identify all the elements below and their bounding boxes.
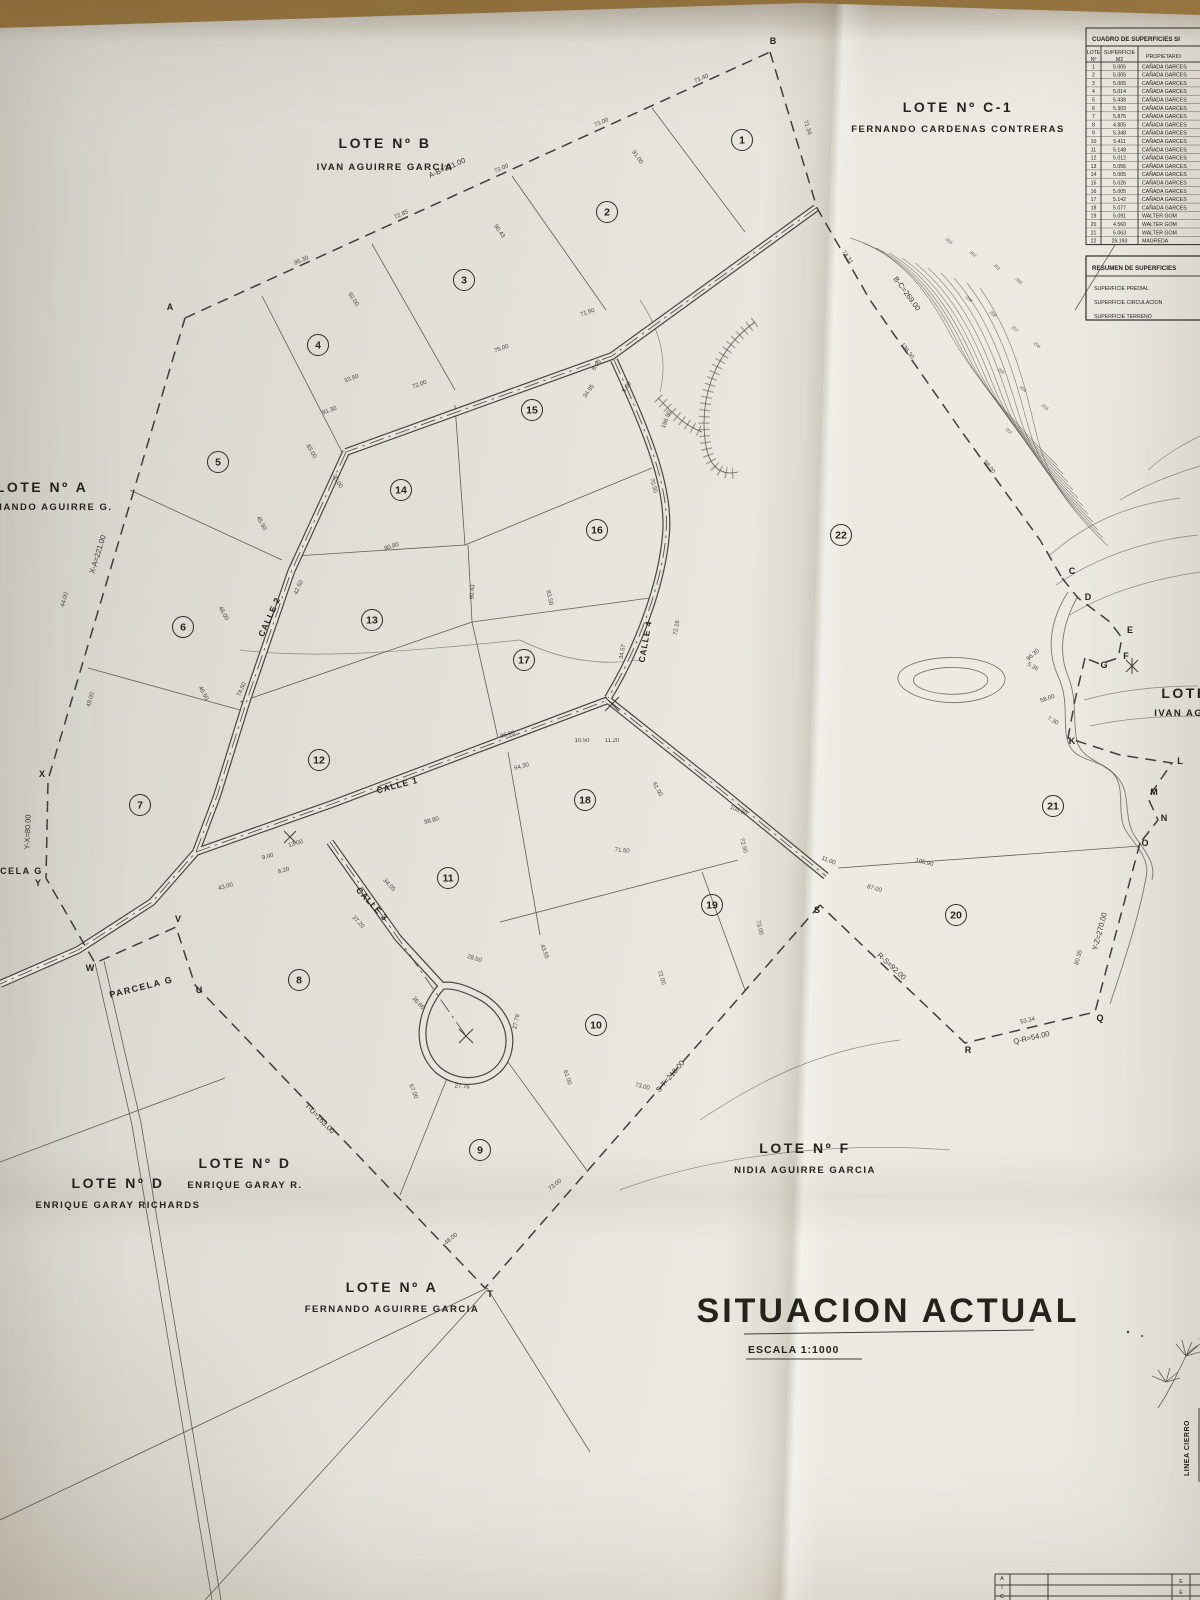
table-cell-superficie: 5.012 <box>1113 156 1126 162</box>
surface-summary: RESUMEN DE SUPERFICIESSUPERFICIE PREDIAL… <box>1086 256 1200 320</box>
parcel-division-lines <box>0 108 1140 1600</box>
edge-dimension-label: 11.00 <box>820 856 836 867</box>
edge-dimension-label: 98.00 <box>982 460 997 476</box>
table-cell-propietario: CAÑADA GARCES <box>1142 97 1187 104</box>
edge-dimension-label: 53.34 <box>1020 1016 1037 1025</box>
table-cell-superficie: 5.411 <box>1113 139 1126 145</box>
contour-elevation-label: 258 <box>988 310 997 319</box>
lot-owner-label: ENRIQUE GARAY R. <box>187 1180 302 1191</box>
contour-elevation-label: 257 <box>1010 325 1019 334</box>
edge-dimension-label: 105.90 <box>915 858 935 868</box>
contour-line <box>850 238 1058 466</box>
edge-dimension-label: 83.00 <box>305 443 318 460</box>
table-cell-lote: 8 <box>1092 122 1095 128</box>
table-cell-propietario: CAÑADA GARCES <box>1142 80 1187 87</box>
table-cell-lote: 10 <box>1091 139 1097 145</box>
resumen-title: RESUMEN DE SUPERFICIES <box>1092 265 1176 272</box>
table-cell-propietario: CAÑADA GARCES <box>1142 204 1187 211</box>
lot-name-label: LOTE Nº D <box>199 1155 292 1171</box>
boundary-point-letter: O <box>1141 838 1148 848</box>
table-cell-lote: 1 <box>1092 64 1095 70</box>
parcel-number: 5 <box>215 457 221 469</box>
edge-dimension-label: 5.36 <box>1026 662 1040 673</box>
boundary-point-letter: T <box>487 1289 493 1299</box>
edge-dimension-label: 74.31 <box>840 250 854 266</box>
table-cell-lote: 16 <box>1091 189 1097 195</box>
edge-dimension-label: 10.50 <box>574 738 590 744</box>
edge-dimension-label: 73.00 <box>634 1082 651 1092</box>
table-cell-superficie: 5.005 <box>1113 172 1126 178</box>
edge-dimension-label: 73.00 <box>548 1178 564 1193</box>
edge-dimension-label: 37.20 <box>350 915 365 931</box>
edge-dimension-label: 71.34 <box>802 120 813 137</box>
edge-dimension-label: 11.20 <box>605 738 620 744</box>
lot-name-label: LOTE Nº B <box>339 135 432 151</box>
lot-name-label: LOTE Nº C-1 <box>903 99 1013 115</box>
parcel-number: 18 <box>579 795 591 807</box>
boundary-point-letter: N <box>1161 813 1168 823</box>
boundary-point-letter: K <box>1069 736 1076 746</box>
boundary-dimension-label: Q-R=54.00 <box>1012 1029 1050 1046</box>
boundary-point-letter: F <box>1123 651 1129 661</box>
edge-dimension-label: 58.00 <box>1040 693 1057 704</box>
edge-dimension-label: 73.00 <box>594 117 611 129</box>
table-cell-superficie: 5.056 <box>1113 164 1126 170</box>
table-cell-lote: 19 <box>1091 214 1097 220</box>
edge-dimension-label: 40.50 <box>197 685 210 702</box>
edge-dimension-label: 91.30 <box>322 405 339 416</box>
boundary-point-letter: S <box>814 905 820 915</box>
edge-dimension-label: 75.00 <box>494 343 511 354</box>
boundary-point-letter: B <box>770 36 777 46</box>
contour-elevation-label: 263 <box>944 237 953 246</box>
edge-dimension-label: 96.30 <box>1026 648 1042 663</box>
table-cell-lote: 13 <box>1091 164 1097 170</box>
edge-dimension-label: 90.43 <box>469 584 476 600</box>
table-cell-propietario: CAÑADA GARCES <box>1142 180 1187 187</box>
edge-dimension-label: 196.50 <box>661 409 673 429</box>
edge-dimension-label: 28.50 <box>466 954 483 965</box>
table-cell-propietario: CAÑADA GARCES <box>1142 130 1187 137</box>
boundary-point-letter: L <box>1177 756 1183 766</box>
table-cell-superficie: 5.091 <box>1113 214 1126 220</box>
table-cell-superficie: 5.063 <box>1113 230 1126 236</box>
table-cell-superficie: 5.438 <box>1113 98 1126 104</box>
boundary-dimension-label: B-C=269.00 <box>892 275 923 313</box>
edge-dimension-label: 7.30 <box>1046 716 1060 727</box>
contour-line <box>915 263 1083 506</box>
parcel-number: 4 <box>315 340 321 352</box>
titleblock-letter: I <box>1001 1585 1002 1591</box>
parcel-number: 13 <box>366 615 378 627</box>
edge-dimension-label: 43.00 <box>218 882 235 892</box>
table-cell-propietario: CAÑADA GARCES <box>1142 171 1187 178</box>
table-cell-superficie: 26.193 <box>1112 239 1128 245</box>
boundary-dimension-label: T-U=163.00 <box>303 1101 337 1136</box>
edge-dimension-label: 80.35 <box>1074 949 1084 966</box>
parcel-number: 3 <box>461 275 467 287</box>
table-cell-propietario: CAÑADA GARCES <box>1142 188 1187 195</box>
lot-owner-label: ENRIQUE GARAY RICHARDS <box>36 1200 201 1211</box>
boundary-point-letter: A <box>167 302 174 312</box>
table-cell-superficie: 4.560 <box>1113 222 1126 228</box>
table-cell-propietario: CAÑADA GARCES <box>1142 121 1187 128</box>
edge-dimension-label: 33.50 <box>344 373 361 384</box>
table-cell-superficie: 5.005 <box>1113 189 1126 195</box>
contour-elevation-label: 261 <box>992 263 1001 272</box>
drawing-title: SITUACION ACTUAL <box>697 1292 1080 1330</box>
edge-dimension-label: 44.00 <box>60 591 70 608</box>
edge-dimension-label: 64.30 <box>514 762 531 772</box>
boundary-point-letter: V <box>175 914 181 924</box>
table-cell-propietario: CAÑADA GARCES <box>1142 88 1187 95</box>
table-cell-lote: 7 <box>1092 114 1095 120</box>
table-cell-superficie: 5.005 <box>1113 81 1126 87</box>
tree-symbol <box>1152 1326 1200 1408</box>
parcel-number: 1 <box>739 135 745 147</box>
edge-dimension-label: 72.50 <box>738 838 748 855</box>
edge-dimension-label: 49.00 <box>86 691 96 708</box>
contour-line <box>980 288 1108 546</box>
parcel-number: 22 <box>835 530 847 542</box>
boundary-point-letter: Q <box>1096 1013 1103 1023</box>
table-cell-superficie: 5.005 <box>1113 64 1126 70</box>
table-cell-propietario: CAÑADA GARCES <box>1142 105 1187 112</box>
street-name-label: CALLE 3 <box>354 885 390 923</box>
table-cell-superficie: 5.005 <box>1113 73 1126 79</box>
table-cell-superficie: 4.805 <box>1113 122 1126 128</box>
contour-line <box>967 283 1103 538</box>
table-cell-lote: 6 <box>1092 106 1095 112</box>
table-cell-propietario: CAÑADA GARCES <box>1142 163 1187 170</box>
contour-line <box>889 253 1073 490</box>
boundary-point-letter: G <box>1100 660 1107 670</box>
titleblock-letter: E <box>1179 1590 1183 1596</box>
edge-dimension-label: 61.00 <box>562 1070 573 1087</box>
surface-table: CUADRO DE SUPERFICIES SILOTENºSUPERFICIE… <box>1086 28 1200 245</box>
title-underline <box>744 1330 1034 1334</box>
contour-elevation-label: 252 <box>1004 427 1013 436</box>
edge-dimension-label: 27.79 <box>513 1013 522 1030</box>
parcel-number: 11 <box>442 873 453 885</box>
parcela-label: PARCELA G <box>0 866 43 876</box>
titleblock-letter: A <box>1000 1576 1004 1582</box>
boundary-dimension-label: Y-Z=270.00 <box>1090 911 1109 951</box>
parcel-number: 21 <box>1047 801 1059 813</box>
fence-line-legend-label: LINEA CIERRO <box>1184 1420 1191 1476</box>
table-cell-propietario: MAGREDA <box>1142 239 1169 245</box>
lot-owner-label: FERNANDO CARDENAS CONTRERAS <box>851 124 1065 135</box>
parcel-number: 16 <box>591 525 603 537</box>
titleblock-letter: C <box>1000 1594 1004 1600</box>
terrain-features <box>240 300 1200 1190</box>
resumen-item: SUPERFICIE CIRCULACION <box>1094 300 1163 306</box>
parcel-number: 14 <box>395 485 407 497</box>
table-cell-propietario: CAÑADA GARCES <box>1142 138 1187 145</box>
edge-dimension-label: 13.00 <box>288 839 305 849</box>
contour-line <box>941 273 1093 522</box>
edge-dimension-label: 67.00 <box>407 1084 418 1101</box>
lot-name-label: LOTE Nº D <box>72 1175 165 1191</box>
table-title: CUADRO DE SUPERFICIES SI <box>1092 36 1180 43</box>
edge-dimension-label: 34.05 <box>381 878 396 894</box>
edge-dimension-label: 98.80 <box>424 816 441 826</box>
photo-of-plan: CIAEE CUADRO DE SUPERFICIES SILOTENºSUPE… <box>0 0 1200 1600</box>
edge-dimension-label: 9.00 <box>261 852 274 861</box>
plan-drawing: CIAEE CUADRO DE SUPERFICIES SILOTENºSUPE… <box>0 0 1200 1600</box>
table-header: SUPERFICIE <box>1104 50 1136 56</box>
boundary-dimension-label: S-T=218.00 <box>654 1059 687 1095</box>
resumen-item: SUPERFICIE TERRENO <box>1094 314 1152 320</box>
lot-name-label: LOTE Nº A <box>346 1279 438 1295</box>
edge-dimension-label: 27.76 <box>454 1083 470 1090</box>
parcel-number: 10 <box>590 1020 602 1032</box>
boundary-point-letter: M <box>1150 787 1158 797</box>
edge-dimension-label: 91.00 <box>630 150 644 166</box>
contour-elevation-label: 255 <box>996 367 1005 376</box>
lot-owner-label: NIDIA AGUIRRE GARCIA <box>734 1165 876 1176</box>
table-cell-lote: 14 <box>1091 172 1097 178</box>
boundary-point-letter: X <box>39 769 45 779</box>
contour-elevation-label: 254 <box>1018 385 1027 394</box>
resumen-item: SUPERFICIE PREDIAL <box>1094 286 1149 292</box>
table-cell-lote: 3 <box>1092 81 1095 87</box>
edge-dimension-label: 72.00 <box>656 970 667 987</box>
table-cell-superficie: 5.014 <box>1113 89 1126 95</box>
contour-line <box>954 278 1098 530</box>
parcel-number: 20 <box>950 910 962 922</box>
table-cell-superficie: 5.875 <box>1113 114 1126 120</box>
lot-owner-label: IVAN AGUI <box>1154 708 1200 719</box>
table-cell-lote: 9 <box>1092 131 1095 137</box>
title-block <box>995 1574 1200 1600</box>
contour-elevation-label: 256 <box>1032 341 1041 350</box>
edge-dimension-label: 72.00 <box>412 379 429 390</box>
table-cell-propietario: WALTER GOM <box>1142 222 1177 228</box>
table-cell-propietario: CAÑADA GARCES <box>1142 113 1187 120</box>
table-header: LOTE <box>1087 50 1101 56</box>
lot-owner-label: FERNANDO AGUIRRE G. <box>0 502 113 513</box>
edge-dimension-label: 83.50 <box>544 590 553 607</box>
table-cell-superficie: 5.077 <box>1113 205 1126 211</box>
edge-dimension-label: 136.30 <box>899 342 915 361</box>
parcel-number: 7 <box>137 800 143 812</box>
table-cell-lote: 4 <box>1092 89 1095 95</box>
table-cell-lote: 11 <box>1091 147 1096 153</box>
contour-elevation-label: 260 <box>1014 277 1023 286</box>
table-cell-superficie: 5.348 <box>1113 131 1126 137</box>
table-cell-propietario: WALTER GOM <box>1142 230 1177 236</box>
table-cell-superficie: 5.148 <box>1113 147 1126 153</box>
boundary-point-letter: D <box>1085 592 1092 602</box>
titleblock-letter: E <box>1179 1579 1183 1585</box>
parcel-number: 9 <box>477 1145 483 1157</box>
table-cell-lote: 2 <box>1092 73 1095 79</box>
paper-sheet: CIAEE CUADRO DE SUPERFICIES SILOTENºSUPE… <box>0 0 1200 1600</box>
lot-owner-label: FERNANDO AGUIRRE GARCIA <box>305 1304 480 1315</box>
edge-dimension-label: 8.20 <box>277 866 290 875</box>
boundary-point-letter: C <box>1069 566 1076 576</box>
table-cell-lote: 22 <box>1091 239 1097 245</box>
parcel-number: 12 <box>313 755 325 767</box>
table-cell-propietario: WALTER GOM <box>1142 214 1177 220</box>
boundary-point-letter: E <box>1127 625 1133 635</box>
edge-dimension-label: 48.00 <box>444 1232 460 1247</box>
edge-dimension-label: 87.00 <box>866 884 883 894</box>
table-cell-propietario: CAÑADA GARCES <box>1142 196 1187 203</box>
edge-dimension-label: 92.00 <box>346 292 359 308</box>
table-cell-lote: 15 <box>1091 181 1097 187</box>
parcela-label: PARCELA G <box>108 974 174 1000</box>
table-cell-lote: 20 <box>1091 222 1097 228</box>
edge-dimension-label: 34.95 <box>582 383 596 399</box>
edge-dimension-label: 71.50 <box>614 847 630 855</box>
boundary-dimension-label: X-A=221.00 <box>87 534 107 575</box>
scale-label: ESCALA 1:1000 <box>748 1344 839 1356</box>
edge-dimension-label: 71.50 <box>580 307 597 318</box>
lot-name-label: LOTE <box>1161 685 1200 701</box>
parcel-number: 15 <box>526 405 538 417</box>
lot-name-label: LOTE Nº F <box>759 1140 850 1156</box>
table-cell-propietario: CAÑADA GARCES <box>1142 146 1187 153</box>
edge-dimension-label: 90.43 <box>492 224 506 240</box>
parcel-number: 2 <box>604 207 610 219</box>
survey-marks: CIAEE <box>284 658 1200 1600</box>
table-cell-superficie: 5.142 <box>1113 197 1126 203</box>
edge-dimension-label: 43.55 <box>539 944 550 961</box>
table-cell-propietario: CAÑADA GARCES <box>1142 72 1187 79</box>
boundary-dimension-label: R-S=92.00 <box>875 951 908 982</box>
edge-dimension-label: 72.16 <box>673 619 682 635</box>
boundary-point-letter: R <box>965 1045 972 1055</box>
parcel-number: 19 <box>706 900 718 912</box>
contour-lines <box>850 238 1108 546</box>
edge-dimension-label: 42.50 <box>293 579 305 596</box>
table-cell-lote: 18 <box>1091 205 1097 211</box>
edge-dimension-label: 90.80 <box>384 542 401 552</box>
boundary-point-letter: W <box>86 963 95 973</box>
edge-dimension-label: 73.00 <box>754 920 764 937</box>
contour-elevation-label: 262 <box>968 250 977 259</box>
table-cell-superficie: 5.303 <box>1113 106 1126 112</box>
table-cell-lote: 17 <box>1091 197 1097 203</box>
table-cell-lote: 5 <box>1092 98 1095 104</box>
table-cell-propietario: CAÑADA GARCES <box>1142 155 1187 162</box>
boundary-dimension-label: Y-X=80.00 <box>22 814 32 849</box>
table-cell-superficie: 5.026 <box>1113 181 1126 187</box>
edge-dimension-label: 61.00 <box>651 781 664 798</box>
boundary-point-letter: U <box>196 985 203 995</box>
edge-dimension-label: 45.50 <box>255 515 268 532</box>
parcel-number: 8 <box>296 975 302 987</box>
table-header: PROPIETARIO <box>1146 54 1181 60</box>
property-boundary <box>46 52 1172 1288</box>
table-cell-lote: 21 <box>1091 230 1097 236</box>
lot-name-label: LOTE Nº A <box>0 479 88 495</box>
edge-dimension-label: 48.00 <box>217 605 230 622</box>
table-cell-lote: 12 <box>1091 156 1097 162</box>
map-labels: LOTE Nº BIVAN AGUIRRE GARCIALOTE Nº C-1F… <box>0 36 1200 1315</box>
contour-line <box>928 268 1088 514</box>
parcel-number: 17 <box>518 655 530 667</box>
parcel-number: 6 <box>180 622 186 634</box>
contour-elevation-label: 253 <box>1040 403 1049 412</box>
boundary-point-letter: Y <box>35 878 41 888</box>
table-cell-propietario: CAÑADA GARCES <box>1142 63 1187 70</box>
